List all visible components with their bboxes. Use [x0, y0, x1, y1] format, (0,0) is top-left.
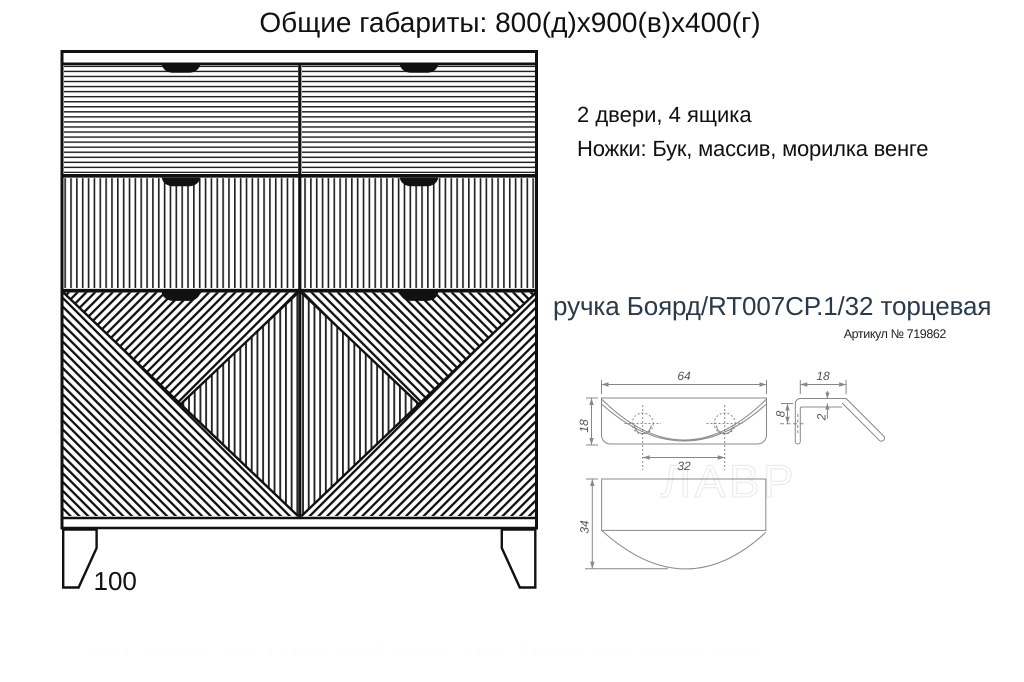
svg-text:2 двери, 4 ящика: 2 двери, 4 ящика — [577, 102, 752, 127]
svg-text:Ножки: Бук, массив, морилка ве: Ножки: Бук, массив, морилка венге — [577, 136, 928, 161]
svg-text:Артикул № 719862: Артикул № 719862 — [844, 327, 947, 341]
svg-text:ручка Боярд/RT007СР.1/32 торце: ручка Боярд/RT007СР.1/32 торцевая — [553, 291, 991, 321]
svg-text:18: 18 — [577, 419, 591, 433]
svg-text:2: 2 — [815, 413, 829, 421]
svg-text:Общие габариты: 800(д)х900(в)х: Общие габариты: 800(д)х900(в)х400(г) — [259, 7, 760, 38]
svg-text:ЛАВР-Мебель ЛАВР-Мебель ЛАВР-М: ЛАВР-Мебель ЛАВР-Мебель ЛАВР-Мебель ЛАВР… — [90, 643, 762, 658]
svg-text:64: 64 — [677, 369, 691, 383]
svg-text:100: 100 — [94, 566, 137, 596]
svg-text:34: 34 — [578, 520, 592, 534]
svg-text:8: 8 — [774, 410, 788, 417]
svg-text:32: 32 — [677, 459, 691, 473]
svg-text:18: 18 — [816, 369, 830, 383]
